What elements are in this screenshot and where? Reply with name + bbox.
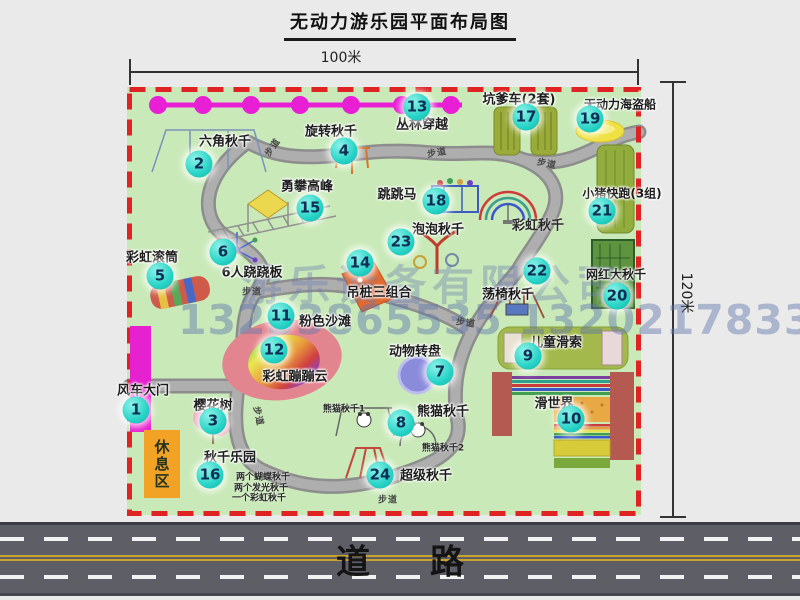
rest-area-label: 休息区 bbox=[152, 439, 173, 490]
road-label: 道路 bbox=[276, 535, 524, 584]
pig-run-sketch bbox=[597, 145, 634, 233]
rest-area: 休息区 bbox=[144, 430, 180, 498]
road: 道路 bbox=[0, 522, 800, 596]
watermark-phone: 13233865535 13202178333 bbox=[178, 296, 800, 344]
pirate-ship-sketch bbox=[576, 120, 624, 142]
animal-carousel-sketch bbox=[399, 357, 435, 393]
windmill-gate-bar bbox=[130, 326, 151, 432]
